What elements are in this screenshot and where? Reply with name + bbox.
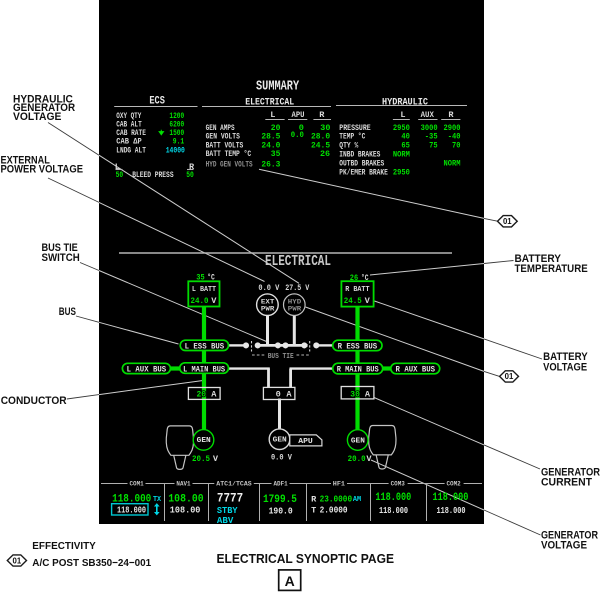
svg-text:20: 20	[197, 390, 207, 400]
svg-text:23.0000: 23.0000	[320, 495, 353, 505]
svg-text:SUMMARY: SUMMARY	[256, 79, 300, 95]
svg-text:R ESS BUS: R ESS BUS	[338, 342, 378, 351]
svg-text:118.000: 118.000	[379, 505, 408, 516]
svg-text:ELECTRICAL: ELECTRICAL	[265, 254, 331, 270]
svg-text:2950: 2950	[393, 168, 410, 178]
svg-text:R: R	[319, 110, 325, 120]
svg-text:BUS TIE: BUS TIE	[268, 353, 294, 361]
svg-text:26: 26	[320, 149, 330, 159]
svg-text:STBY: STBY	[217, 506, 238, 516]
svg-text:108.00: 108.00	[170, 505, 201, 516]
svg-text:APU: APU	[298, 438, 313, 446]
svg-text:SWITCH: SWITCH	[42, 252, 80, 264]
svg-text:L MAIN BUS: L MAIN BUS	[183, 365, 225, 374]
svg-text:26.3: 26.3	[261, 160, 280, 170]
svg-text:BUS: BUS	[59, 306, 76, 318]
svg-text:APU: APU	[292, 110, 305, 120]
svg-text:°C: °C	[207, 272, 215, 282]
svg-text:TEMPERATURE: TEMPERATURE	[515, 263, 588, 275]
svg-text:BLEED PRESS: BLEED PRESS	[132, 170, 173, 180]
svg-text:30: 30	[350, 389, 360, 399]
svg-text:01: 01	[505, 372, 514, 381]
svg-text:V: V	[213, 454, 219, 464]
svg-text:EFFECTIVITY: EFFECTIVITY	[32, 540, 96, 552]
svg-text:35: 35	[196, 272, 204, 282]
svg-text:118.000: 118.000	[437, 505, 466, 516]
svg-text:CURRENT: CURRENT	[541, 477, 592, 489]
svg-text:20.0: 20.0	[348, 454, 366, 464]
svg-text:R MAIN BUS: R MAIN BUS	[337, 365, 379, 374]
svg-text:L BATT: L BATT	[192, 286, 217, 294]
svg-text:NAV1: NAV1	[176, 481, 190, 489]
svg-text:50: 50	[186, 170, 194, 180]
svg-text:0: 0	[276, 390, 281, 400]
svg-text:24.5: 24.5	[344, 296, 362, 306]
svg-text:COM2: COM2	[447, 481, 461, 489]
svg-text:0.0 V: 0.0 V	[271, 453, 293, 463]
svg-text:70: 70	[452, 141, 461, 151]
svg-text:L: L	[270, 110, 275, 120]
svg-text:LNDG ALT: LNDG ALT	[116, 145, 146, 155]
svg-text:R: R	[311, 495, 317, 505]
svg-text:01: 01	[13, 556, 22, 565]
svg-text:01: 01	[503, 217, 512, 226]
svg-text:7777: 7777	[217, 490, 243, 505]
svg-text:190.0: 190.0	[269, 506, 293, 517]
svg-text:VOLTAGE: VOLTAGE	[13, 111, 61, 123]
svg-text:ABV: ABV	[217, 516, 234, 526]
svg-text:14000: 14000	[166, 145, 185, 155]
svg-text:GEN: GEN	[351, 437, 365, 445]
svg-text:HF1: HF1	[333, 481, 345, 489]
svg-text:0.0: 0.0	[291, 130, 304, 140]
svg-text:AM: AM	[353, 496, 362, 504]
svg-text:V: V	[365, 296, 371, 306]
svg-text:R AUX BUS: R AUX BUS	[396, 365, 436, 374]
svg-text:GEN: GEN	[197, 437, 211, 445]
svg-text:A: A	[286, 390, 292, 400]
svg-text:PWR: PWR	[261, 306, 276, 314]
svg-text:PK/EMER BRAKE: PK/EMER BRAKE	[339, 168, 388, 178]
svg-text:COM1: COM1	[130, 481, 144, 489]
svg-text:GEN: GEN	[273, 437, 287, 445]
svg-text:R: R	[448, 110, 454, 120]
svg-text:118.000: 118.000	[117, 505, 146, 516]
svg-text:A: A	[365, 389, 371, 399]
svg-text:ATC1/TCAS: ATC1/TCAS	[216, 481, 251, 489]
svg-text:HYD GEN VOLTS: HYD GEN VOLTS	[206, 160, 253, 170]
svg-text:CONDUCTOR: CONDUCTOR	[1, 395, 67, 407]
svg-text:VOLTAGE: VOLTAGE	[541, 539, 587, 551]
svg-text:L: L	[400, 110, 405, 120]
svg-text:POWER VOLTAGE: POWER VOLTAGE	[1, 163, 84, 175]
svg-text:0.0 V: 0.0 V	[258, 283, 280, 293]
svg-text:35: 35	[271, 149, 281, 159]
svg-text:ELECTRICAL SYNOPTIC PAGE: ELECTRICAL SYNOPTIC PAGE	[217, 551, 395, 566]
svg-text:1799.5: 1799.5	[263, 494, 297, 506]
svg-text:T: T	[311, 506, 316, 516]
svg-text:A: A	[211, 390, 217, 400]
svg-text:118.000: 118.000	[433, 492, 469, 504]
svg-text:50: 50	[116, 170, 124, 180]
svg-text:L AUX BUS: L AUX BUS	[127, 365, 167, 374]
svg-text:26: 26	[350, 273, 358, 283]
svg-text:TX: TX	[153, 496, 162, 504]
svg-text:V: V	[211, 296, 217, 306]
svg-text:2.0000: 2.0000	[320, 505, 348, 516]
svg-text:PWR: PWR	[288, 306, 303, 314]
svg-text:27.5 V: 27.5 V	[285, 283, 310, 293]
svg-text:118.000: 118.000	[375, 492, 411, 504]
svg-text:L ESS BUS: L ESS BUS	[185, 342, 225, 351]
svg-text:AUX: AUX	[421, 110, 435, 120]
svg-text:BATT TEMP °C: BATT TEMP °C	[206, 149, 252, 159]
svg-text:VOLTAGE: VOLTAGE	[543, 361, 587, 373]
svg-text:COM3: COM3	[391, 481, 405, 489]
svg-text:20.5: 20.5	[192, 454, 210, 464]
svg-text:A/C POST SB350−24−001: A/C POST SB350−24−001	[32, 557, 151, 569]
svg-text:HYDRAULIC: HYDRAULIC	[382, 96, 428, 108]
svg-text:R BATT: R BATT	[345, 286, 370, 294]
svg-text:24.0: 24.0	[191, 296, 209, 306]
svg-text:V: V	[366, 454, 372, 464]
svg-text:°C: °C	[361, 273, 369, 283]
svg-text:ADF1: ADF1	[274, 481, 288, 489]
svg-text:A: A	[285, 573, 295, 589]
svg-text:ECS: ECS	[149, 95, 165, 107]
svg-text:NORM: NORM	[393, 150, 410, 160]
svg-text:75: 75	[429, 141, 438, 151]
svg-text:NORM: NORM	[444, 158, 461, 168]
